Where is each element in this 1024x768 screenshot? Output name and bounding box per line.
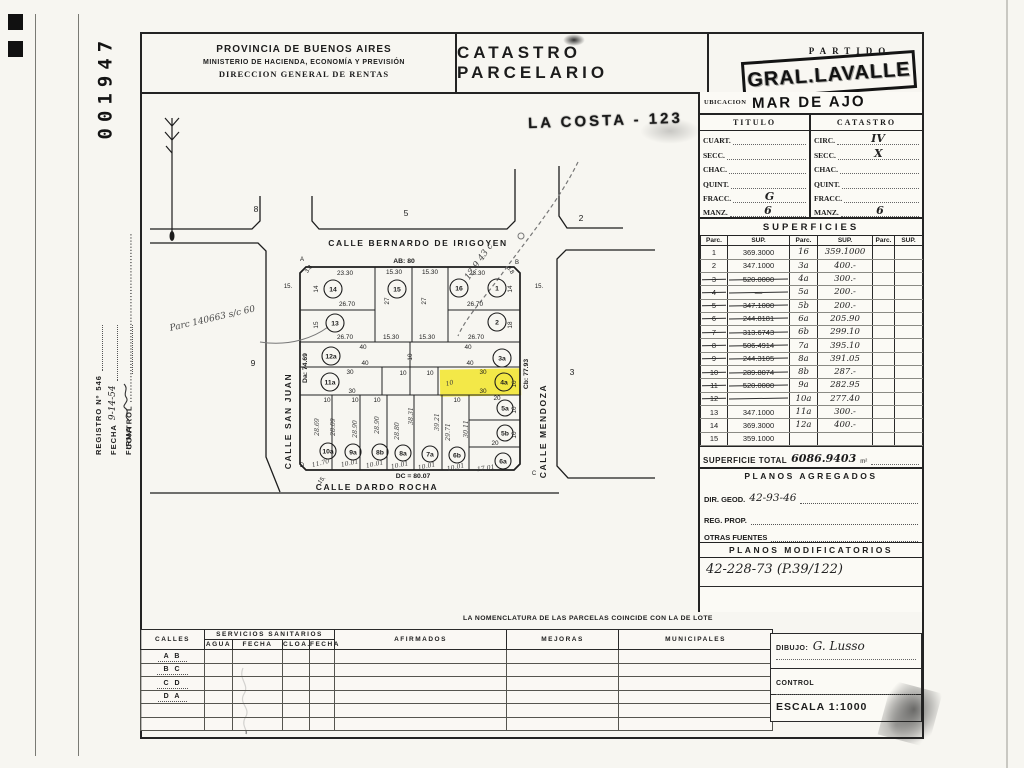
catastro-label: CHAC.	[814, 165, 838, 174]
parcel-cell: 10a	[790, 392, 818, 405]
superficie-cell	[895, 366, 923, 379]
superficie-cell: 369.3000	[728, 246, 790, 259]
col-calles: CALLES	[141, 630, 205, 650]
superficie-cell: 299.10	[818, 326, 873, 339]
superficies-row: 8506.49147a395.10	[701, 339, 923, 352]
empty-cell	[310, 690, 335, 704]
dir-geod-row: DIR. GEOD. 42-93-46	[700, 483, 922, 504]
reg-prop-leader	[751, 515, 918, 525]
services-row: B C	[141, 663, 773, 677]
parcel-cell: 4a	[790, 272, 818, 285]
superficie-cell	[895, 419, 923, 432]
services-header-row1: CALLES SERVICIOS SANITARIOS AFIRMADOS ME…	[141, 630, 773, 640]
catastro-column: CATASTRO CIRC.IVSECC.XCHAC.QUINT.FRACC.M…	[811, 115, 922, 217]
superficie-cell: 520.0000	[728, 379, 790, 392]
org-line3: DIRECCION GENERAL DE RENTAS	[154, 68, 454, 81]
reg-prop-row: REG. PROP.	[700, 504, 922, 525]
empty-cell	[205, 650, 233, 664]
dibujo-label: DIBUJO:	[776, 645, 808, 652]
parcel-cell: 7	[701, 326, 728, 339]
parcel-cell	[873, 379, 895, 392]
superficie-cell: 359.1000	[728, 432, 790, 445]
parcel-cell: 8b	[790, 366, 818, 379]
side-label-text: D A	[158, 693, 188, 702]
col-sup: SUP.	[818, 236, 873, 246]
parcel-cell: 6	[701, 312, 728, 325]
superficie-cell: 313.6743	[728, 326, 790, 339]
parcel-cell	[873, 339, 895, 352]
empty-cell	[233, 650, 283, 664]
superficie-cell: 400.-	[818, 419, 873, 432]
superficies-row: 4—5a200.-	[701, 286, 923, 299]
empty-cell	[310, 704, 335, 718]
parcel-cell	[873, 299, 895, 312]
empty-cell	[619, 663, 773, 677]
superficies-row: 9244.31058a391.05	[701, 352, 923, 365]
dir-geod-leader	[800, 494, 918, 504]
titulo-label: CUART.	[703, 136, 731, 145]
empty-cell	[283, 677, 310, 691]
services-table: CALLES SERVICIOS SANITARIOS AFIRMADOS ME…	[140, 629, 773, 731]
planos-modificatorios-title: PLANOS MODIFICATORIOS	[700, 542, 922, 558]
empty-cell	[507, 717, 619, 731]
parcel-cell	[873, 286, 895, 299]
parcel-cell: 6b	[790, 326, 818, 339]
empty-cell	[233, 663, 283, 677]
parcel-cell	[873, 405, 895, 418]
sub-fecha: FECHA	[310, 640, 335, 650]
empty-cell	[507, 704, 619, 718]
superficie-cell: 347.1000	[728, 405, 790, 418]
superficie-cell: 369.3000	[728, 419, 790, 432]
superficie-cell	[895, 246, 923, 259]
parcel-cell: 3	[701, 272, 728, 285]
services-row: A B	[141, 650, 773, 664]
parcel-cell: 8	[701, 339, 728, 352]
superficie-cell: 359.1000	[818, 246, 873, 259]
calle-side-label: A B	[141, 650, 205, 664]
parcel-cell	[873, 272, 895, 285]
empty-cell	[619, 717, 773, 731]
parcel-cell	[873, 352, 895, 365]
titulo-value: G	[733, 192, 806, 203]
superficie-cell	[895, 379, 923, 392]
titulo-row: QUINT.	[700, 174, 809, 188]
catastro-value	[842, 188, 919, 189]
superficie-cell: 347.1000	[728, 299, 790, 312]
col-municipales: MUNICIPALES	[619, 630, 773, 650]
empty-cell	[335, 663, 507, 677]
catastro-row: QUINT.	[811, 174, 922, 188]
catastro-label: FRACC.	[814, 194, 842, 203]
superficie-cell: 205.90	[818, 312, 873, 325]
dibujo-leader	[776, 655, 916, 660]
titulo-row: MANZ.6	[700, 203, 809, 217]
planos-modificatorios-entry: 42-228-73 (P.39/122)	[700, 558, 922, 587]
otras-fuentes-label: OTRAS FUENTES	[704, 533, 767, 542]
parcel-cell: 14	[701, 419, 728, 432]
superficie-cell: 244.3105	[728, 352, 790, 365]
superficies-row: 10289.80748b287.-	[701, 366, 923, 379]
titulo-value	[731, 188, 806, 189]
superficie-cell: 282.95	[818, 379, 873, 392]
parcel-cell	[873, 392, 895, 405]
superficie-cell	[895, 432, 923, 445]
superficies-row: 5347.10005b200.-	[701, 299, 923, 312]
ubicacion-value: MAR DE AJO	[752, 93, 866, 112]
empty-cell	[310, 717, 335, 731]
footer-boxes: DIBUJO: G. Lusso CONTROL ESCALA 1:1000	[770, 633, 922, 722]
reg-prop-label: REG. PROP.	[704, 516, 747, 525]
catastro-row: CIRC.IV	[811, 131, 922, 145]
titulo-column: TITULO CUART.SECC.CHAC.QUINT.FRACC.GMANZ…	[700, 115, 811, 217]
parcel-cell: 12a	[790, 419, 818, 432]
titulo-row: SECC.	[700, 145, 809, 159]
parcel-cell: 12	[701, 392, 728, 405]
parcel-cell	[873, 259, 895, 272]
services-table-wrap: CALLES SERVICIOS SANITARIOS AFIRMADOS ME…	[140, 629, 773, 731]
document-title: CATASTRO PARCELARIO	[457, 43, 707, 83]
col-sup: SUP.	[895, 236, 923, 246]
services-row: D A	[141, 690, 773, 704]
parcel-cell: 5a	[790, 286, 818, 299]
empty-cell	[507, 677, 619, 691]
org-line2: MINISTERIO DE HACIENDA, ECONOMÍA Y PREVI…	[154, 58, 454, 69]
titulo-label: SECC.	[703, 151, 725, 160]
titulo-row: CHAC.	[700, 160, 809, 174]
catastro-value: IV	[837, 134, 919, 145]
ubicacion-label: UBICACION	[704, 99, 746, 106]
parcel-cell: 11a	[790, 405, 818, 418]
superficie-total-label: SUPERFICIE TOTAL	[703, 456, 787, 465]
parcel-cell: 6a	[790, 312, 818, 325]
parcel-cell	[873, 419, 895, 432]
superficie-cell	[895, 326, 923, 339]
parcel-cell	[873, 326, 895, 339]
parcel-cell	[873, 312, 895, 325]
superficie-cell	[895, 299, 923, 312]
calle-side-label	[141, 717, 205, 731]
superficie-cell: 300.-	[818, 272, 873, 285]
parcel-cell: 5	[701, 299, 728, 312]
dibujo-value: G. Lusso	[813, 639, 865, 653]
superficie-cell: 244.8181	[728, 312, 790, 325]
superficies-row: 13347.100011a300.-	[701, 405, 923, 418]
side-label-text: C D	[157, 680, 187, 689]
scanned-cadastral-document: 001947 CONTROL .........................…	[0, 0, 1024, 768]
superficie-total-unit: m²	[860, 459, 867, 465]
superficies-row: 15359.1000	[701, 432, 923, 445]
catastro-label: CIRC.	[814, 136, 835, 145]
parcel-cell: 13	[701, 405, 728, 418]
parcel-cell: 2	[701, 259, 728, 272]
catastro-row: MANZ.6	[811, 203, 922, 217]
empty-cell	[283, 717, 310, 731]
empty-cell	[507, 690, 619, 704]
titulo-value	[733, 144, 806, 145]
org-line1: PROVINCIA DE BUENOS AIRES	[154, 42, 454, 58]
superficie-cell: 200.-	[818, 286, 873, 299]
parcel-cell: 5b	[790, 299, 818, 312]
superficie-cell	[895, 312, 923, 325]
superficie-total-row: SUPERFICIE TOTAL 6086.9403 m²	[700, 446, 922, 469]
superficie-cell: 391.05	[818, 352, 873, 365]
catastro-value: 6	[841, 206, 919, 217]
empty-cell	[619, 704, 773, 718]
superficies-row: 1210a277.40	[701, 392, 923, 405]
empty-cell	[507, 663, 619, 677]
titulo-value	[729, 173, 806, 174]
catastro-label: MANZ.	[814, 208, 839, 217]
superficie-cell: 506.4914	[728, 339, 790, 352]
empty-cell	[205, 704, 233, 718]
parcel-cell: 4	[701, 286, 728, 299]
superficie-cell: 400.-	[818, 259, 873, 272]
control-label: CONTROL	[776, 680, 814, 687]
titulo-label: QUINT.	[703, 180, 729, 189]
sub-agua: AGUA	[205, 640, 233, 650]
sub-cloa: CLOA.	[283, 640, 310, 650]
parcel-cell	[873, 366, 895, 379]
superficies-row: 14369.300012a400.-	[701, 419, 923, 432]
total-leader	[871, 456, 919, 465]
superficies-row: 7313.67436b299.10	[701, 326, 923, 339]
titulo-row: CUART.	[700, 131, 809, 145]
empty-cell	[335, 690, 507, 704]
superficie-cell: —	[728, 286, 790, 299]
empty-cell	[233, 677, 283, 691]
sub-fecha: FECHA	[233, 640, 283, 650]
ubicacion-row: UBICACION MAR DE AJO	[700, 92, 922, 115]
superficies-row: 11520.00009a282.95	[701, 379, 923, 392]
col-parc: Parc.	[790, 236, 818, 246]
titulo-label: MANZ.	[703, 208, 728, 217]
catastro-header: CATASTRO	[811, 115, 922, 131]
dir-geod-label: DIR. GEOD.	[704, 495, 745, 504]
calle-side-label: B C	[141, 663, 205, 677]
calle-side-label: C D	[141, 677, 205, 691]
col-sup: SUP.	[728, 236, 790, 246]
superficie-cell: 395.10	[818, 339, 873, 352]
catastro-value	[840, 173, 919, 174]
parcel-cell: 15	[701, 432, 728, 445]
empty-cell	[335, 650, 507, 664]
empty-cell	[619, 650, 773, 664]
empty-cell	[619, 690, 773, 704]
parcel-cell	[873, 432, 895, 445]
side-label-text: B C	[157, 666, 187, 675]
superficie-cell: 520.0000	[728, 272, 790, 285]
otras-fuentes-row: OTRAS FUENTES	[700, 525, 922, 542]
cadastral-data-panel: UBICACION MAR DE AJO TITULO CUART.SECC.C…	[698, 92, 922, 612]
empty-cell	[619, 677, 773, 691]
superficies-header-row: Parc. SUP. Parc. SUP. Parc. SUP.	[701, 236, 923, 246]
empty-cell	[310, 650, 335, 664]
catastro-label: QUINT.	[814, 180, 840, 189]
empty-cell	[205, 663, 233, 677]
catastro-label: SECC.	[814, 151, 836, 160]
col-afirmados: AFIRMADOS	[335, 630, 507, 650]
titulo-label: FRACC.	[703, 194, 731, 203]
parcel-cell: 7a	[790, 339, 818, 352]
calle-side-label: D A	[141, 690, 205, 704]
superficie-cell	[728, 392, 790, 405]
planos-agregados-title: PLANOS AGREGADOS	[700, 469, 922, 483]
superficies-row: 3520.00004a300.-	[701, 272, 923, 285]
parcel-cell: 11	[701, 379, 728, 392]
superficies-table: Parc. SUP. Parc. SUP. Parc. SUP. 1369.30…	[700, 235, 923, 445]
empty-cell	[233, 717, 283, 731]
titulo-value	[727, 159, 806, 160]
parcel-cell: 16	[790, 246, 818, 259]
empty-cell	[283, 690, 310, 704]
superficie-cell	[895, 405, 923, 418]
empty-cell	[507, 650, 619, 664]
issuing-authority: PROVINCIA DE BUENOS AIRES MINISTERIO DE …	[154, 42, 454, 82]
titulo-label: CHAC.	[703, 165, 727, 174]
parcel-cell: 1	[701, 246, 728, 259]
dibujo-box: DIBUJO: G. Lusso	[771, 634, 921, 669]
empty-cell	[335, 704, 507, 718]
superficies-row: 6244.81816a205.90	[701, 312, 923, 325]
side-label-text: A B	[158, 653, 188, 662]
control-box: CONTROL	[771, 669, 921, 695]
superficie-cell: 347.1000	[728, 259, 790, 272]
empty-cell	[335, 717, 507, 731]
superficie-cell: 300.-	[818, 405, 873, 418]
empty-cell	[310, 677, 335, 691]
superficie-cell: 200.-	[818, 299, 873, 312]
titulo-row: FRACC.G	[700, 189, 809, 203]
superficie-cell: 287.-	[818, 366, 873, 379]
col-parc: Parc.	[873, 236, 895, 246]
superficie-cell	[818, 432, 873, 445]
empty-cell	[335, 677, 507, 691]
superficie-cell	[895, 339, 923, 352]
titulo-value: 6	[730, 206, 806, 217]
col-mejoras: MEJORAS	[507, 630, 619, 650]
superficie-cell: 277.40	[818, 392, 873, 405]
superficie-cell	[895, 272, 923, 285]
col-parc: Parc.	[701, 236, 728, 246]
services-row	[141, 717, 773, 731]
nomenclature-note: LA NOMENCLATURA DE LAS PARCELAS COINCIDE…	[463, 615, 713, 622]
col-servicios: SERVICIOS SANITARIOS	[205, 630, 335, 640]
catastro-row: SECC.X	[811, 145, 922, 159]
catastro-value: X	[838, 149, 919, 160]
escala-label: ESCALA 1:1000	[776, 701, 867, 713]
titulo-catastro-table: TITULO CUART.SECC.CHAC.QUINT.FRACC.GMANZ…	[700, 115, 922, 219]
superficie-cell	[895, 352, 923, 365]
document-title-box: CATASTRO PARCELARIO	[455, 34, 709, 92]
titulo-header: TITULO	[700, 115, 809, 131]
empty-cell	[310, 663, 335, 677]
parcel-cell: 3a	[790, 259, 818, 272]
empty-cell	[233, 704, 283, 718]
empty-cell	[205, 717, 233, 731]
dir-geod-value: 42-93-46	[749, 492, 796, 504]
empty-cell	[283, 650, 310, 664]
calle-side-label	[141, 704, 205, 718]
parcel-cell	[790, 432, 818, 445]
superficies-row: 2347.10003a400.-	[701, 259, 923, 272]
superficie-cell	[895, 259, 923, 272]
catastro-row: CHAC.	[811, 160, 922, 174]
escala-box: ESCALA 1:1000	[771, 695, 921, 721]
services-row: C D	[141, 677, 773, 691]
superficie-cell: 289.8074	[728, 366, 790, 379]
parcel-cell	[873, 246, 895, 259]
empty-cell	[283, 704, 310, 718]
superficie-cell	[895, 286, 923, 299]
empty-cell	[233, 690, 283, 704]
superficie-total-value: 6086.9403	[791, 452, 856, 465]
superficies-title: SUPERFICIES	[700, 219, 922, 235]
parcel-cell: 9	[701, 352, 728, 365]
empty-cell	[283, 663, 310, 677]
superficies-row: 1369.300016359.1000	[701, 246, 923, 259]
catastro-row: FRACC.	[811, 189, 922, 203]
otras-fuentes-leader	[771, 532, 918, 542]
empty-cell	[205, 690, 233, 704]
services-row	[141, 704, 773, 718]
catastro-value	[844, 202, 919, 203]
empty-cell	[205, 677, 233, 691]
superficie-cell	[895, 392, 923, 405]
parcel-cell: 8a	[790, 352, 818, 365]
parcel-cell: 9a	[790, 379, 818, 392]
parcel-cell: 10	[701, 366, 728, 379]
